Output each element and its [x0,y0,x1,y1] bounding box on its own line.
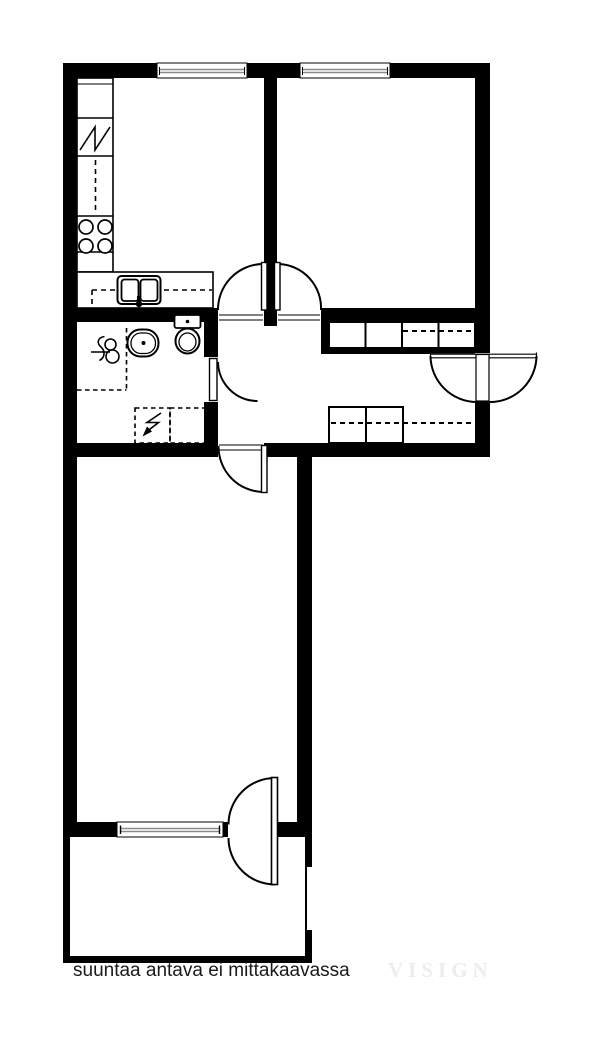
wall-hall-top-right [321,308,490,322]
livingroom-door-opening [218,443,264,457]
hallway-wardrobes [329,322,475,443]
bedroom-door-opening [277,308,321,322]
entry-door [431,355,537,403]
door-openings [204,308,490,837]
balcony-wall-right-lower [305,930,312,963]
wardrobe-row-top [329,322,475,348]
balcony-railing-edge [305,867,307,930]
shower-mixer-icon [91,337,119,364]
wall-livingroom-bottom-a [63,822,117,837]
kitchen-door [218,263,267,311]
livingroom-window [117,822,223,837]
wall-hall-bottom-right [264,443,490,457]
wall-hall-bottom-left [63,443,218,457]
toilet-icon [175,315,201,354]
watermark-text: VISIGN [388,958,493,983]
wall-top [63,63,490,78]
bedroom-window [300,63,390,78]
kitchen-fixtures [77,78,213,308]
balcony-wall-left [63,837,70,963]
bathroom-fixtures [77,315,207,443]
kitchen-door-opening [218,308,264,322]
reservation-arrow-icon [143,413,162,437]
wardrobe-row-bottom [329,407,473,443]
doors [210,263,537,885]
floor-plan-svg [0,0,600,1055]
appliance-reservation-dashed [135,408,207,443]
balcony-wall-right-upper [305,837,312,867]
floor-plan-canvas: suuntaa antava ei mittakaavassa VISIGN [0,0,600,1055]
bathroom-door [210,359,258,402]
wall-bathroom-right-upper [204,322,218,357]
balcony-door-opening [228,822,272,837]
wall-livingroom-bottom-b [223,822,228,837]
kitchen-window [157,63,247,78]
double-sink-icon [118,276,161,307]
bedroom-door [275,263,322,311]
washbasin-icon [128,330,159,357]
caption-text: suuntaa antava ei mittakaavassa [73,960,350,982]
wall-livingroom-right [297,457,312,837]
